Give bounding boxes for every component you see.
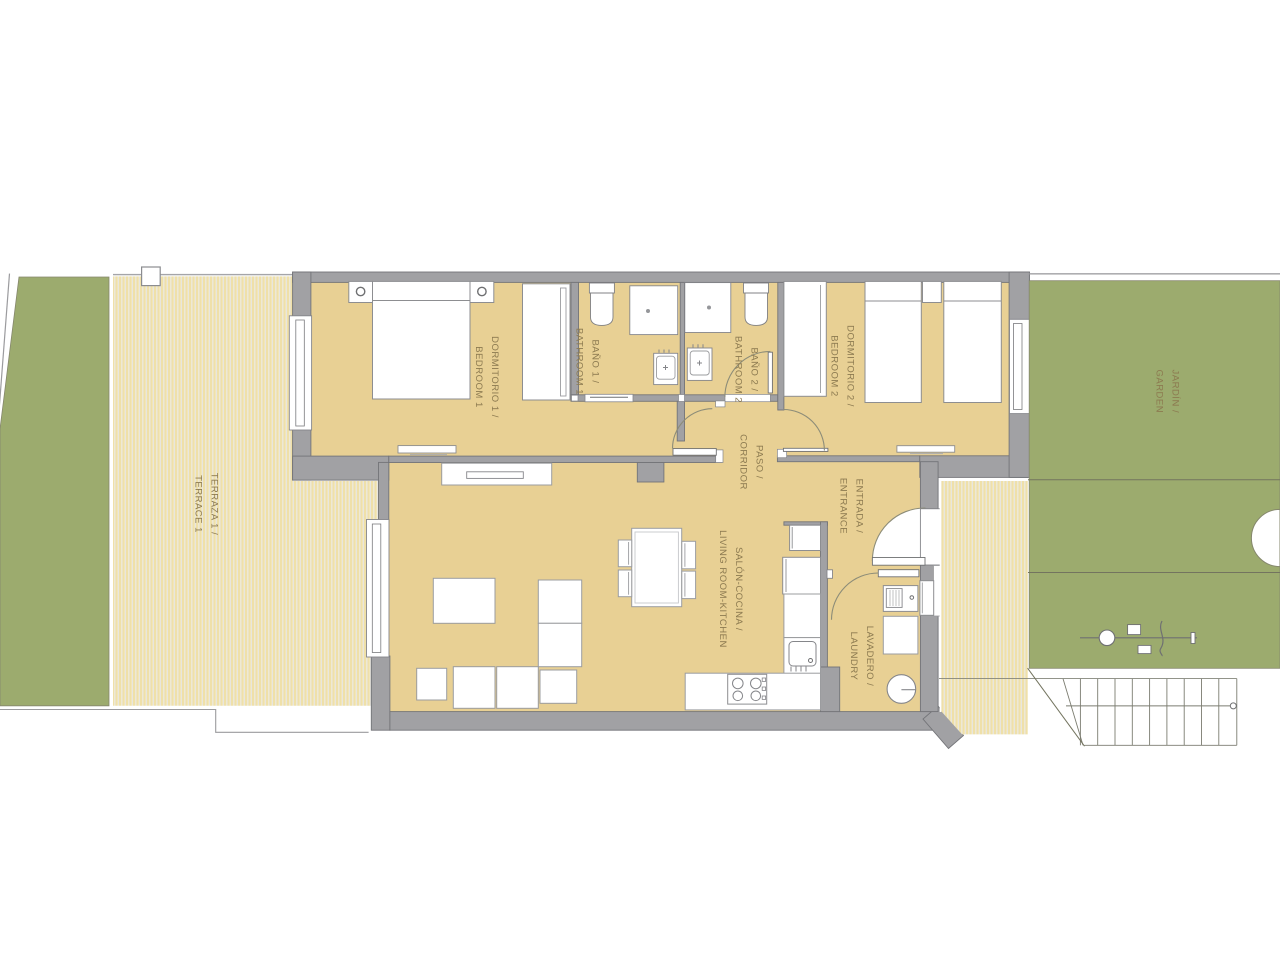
- svg-text:GARDEN: GARDEN: [1153, 369, 1164, 413]
- svg-text:DORMITORIO 2 /: DORMITORIO 2 /: [845, 325, 856, 407]
- svg-text:BEDROOM 1: BEDROOM 1: [473, 346, 484, 408]
- svg-text:LAUNDRY: LAUNDRY: [848, 632, 859, 681]
- svg-text:TERRAZA 1 /: TERRAZA 1 /: [209, 473, 220, 536]
- svg-text:BAÑO 1 /: BAÑO 1 /: [590, 339, 601, 383]
- svg-text:BATHROOM 1: BATHROOM 1: [574, 328, 585, 395]
- svg-text:ENTRANCE: ENTRANCE: [838, 478, 849, 534]
- svg-text:SALÓN-COCINA /: SALÓN-COCINA /: [733, 547, 744, 631]
- svg-text:JARDÍN /: JARDÍN /: [1169, 370, 1180, 414]
- svg-text:DORMITORIO 1 /: DORMITORIO 1 /: [489, 336, 500, 418]
- svg-text:PASO /: PASO /: [754, 445, 765, 479]
- svg-text:TERRACE 1: TERRACE 1: [193, 475, 204, 533]
- svg-text:BATHROOM 2: BATHROOM 2: [733, 336, 744, 403]
- svg-text:LIVING ROOM-KITCHEN: LIVING ROOM-KITCHEN: [717, 530, 728, 648]
- svg-text:BAÑO 2 /: BAÑO 2 /: [749, 347, 760, 391]
- svg-text:BEDROOM 2: BEDROOM 2: [829, 335, 840, 397]
- svg-text:LAVADERO /: LAVADERO /: [864, 626, 875, 687]
- svg-text:ENTRADA /: ENTRADA /: [854, 479, 865, 534]
- svg-text:CORRIDOR: CORRIDOR: [738, 434, 749, 490]
